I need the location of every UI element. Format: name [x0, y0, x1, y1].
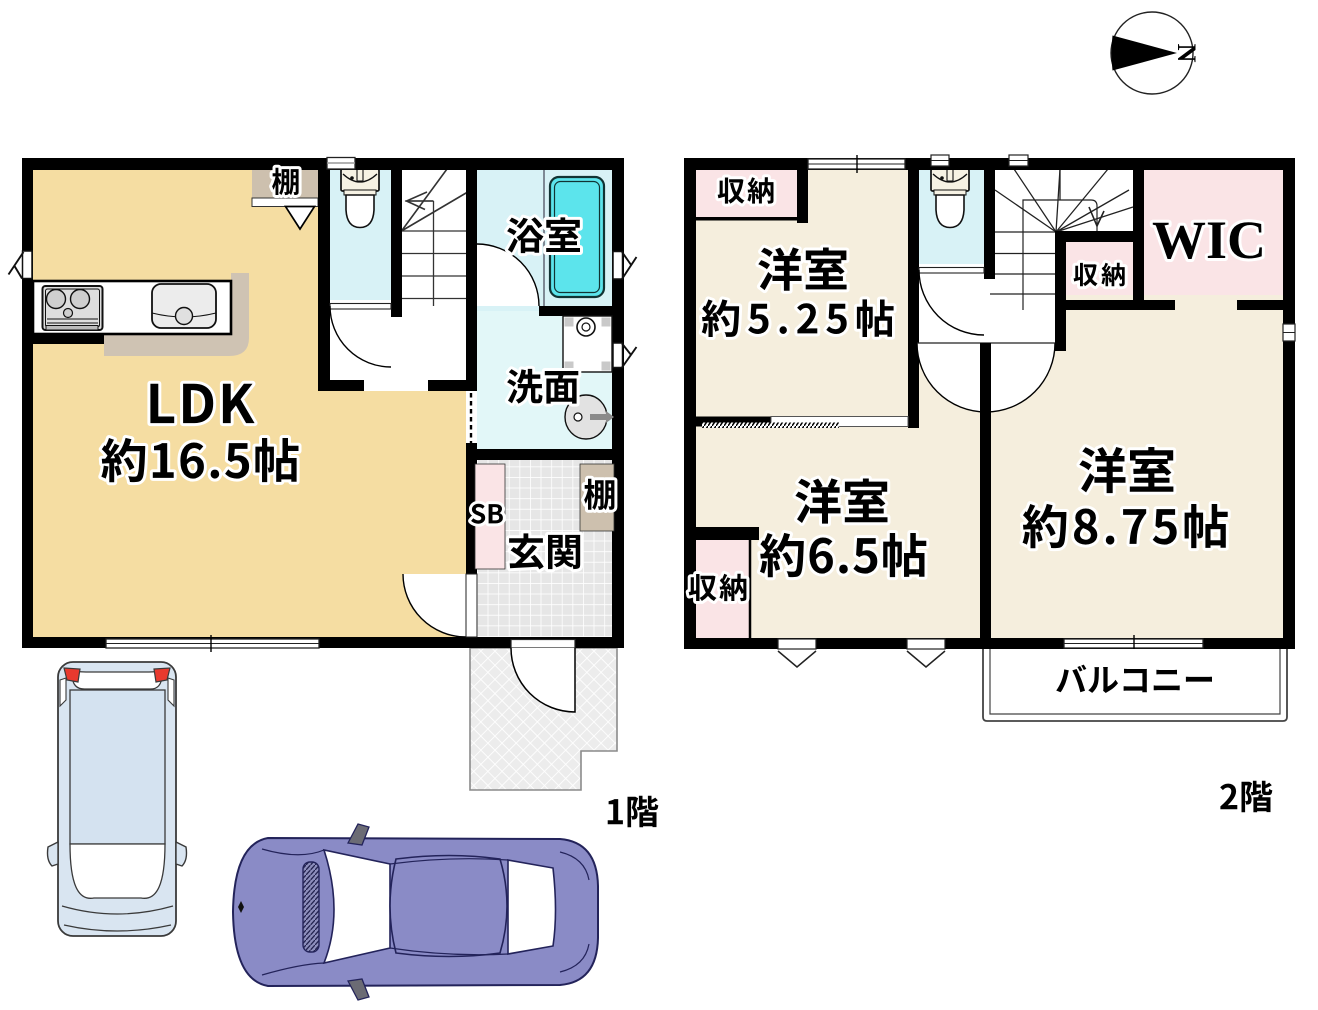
svg-text:N: N — [1172, 44, 1201, 63]
svg-text:WIC: WIC — [1152, 210, 1266, 270]
